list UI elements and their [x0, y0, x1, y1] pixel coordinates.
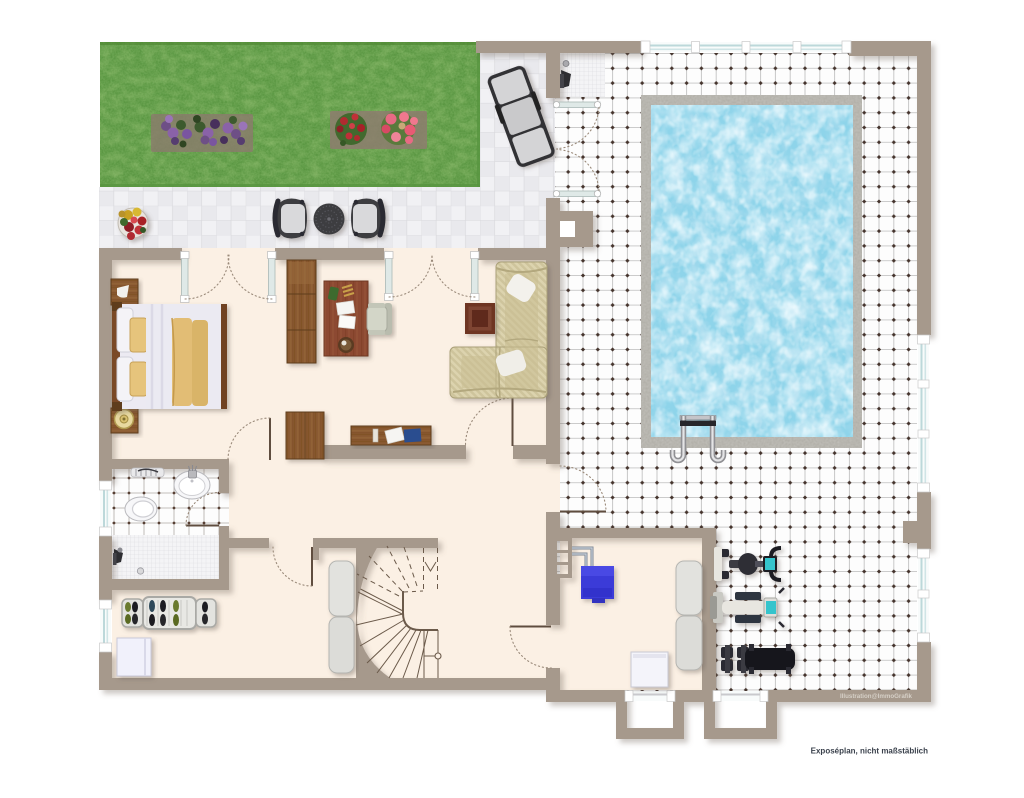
- svg-text:Illustration@ImmoGrafik: Illustration@ImmoGrafik: [840, 693, 913, 700]
- svg-text:Exposéplan, nicht maßstäblich: Exposéplan, nicht maßstäblich: [811, 747, 928, 756]
